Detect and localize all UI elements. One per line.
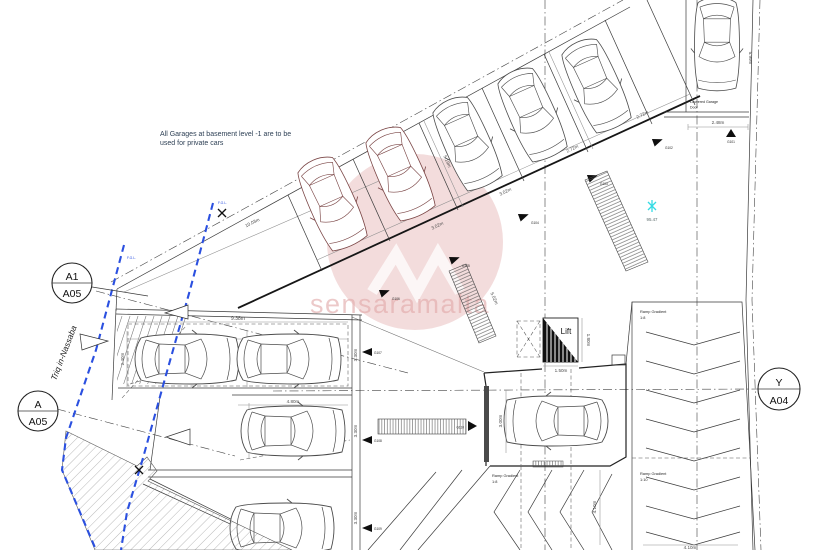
garage-door-label: G102 bbox=[665, 146, 673, 150]
dim-depth2: 3.30m bbox=[353, 424, 358, 437]
dim-lift-width: 1.50m bbox=[555, 368, 568, 373]
parked-car bbox=[241, 402, 345, 460]
section-marker-a: A A05 bbox=[18, 391, 58, 431]
ramp-centre-label: Ramp Gradient bbox=[492, 473, 519, 478]
street-name: Triq in-Nassaba bbox=[49, 324, 79, 382]
dim-stall-w1: 2.72m bbox=[636, 110, 650, 120]
parked-car bbox=[489, 61, 575, 168]
ramp-centre-ratio: 1:8 bbox=[492, 479, 497, 484]
dim-depth1: 3.30m bbox=[353, 348, 358, 361]
garage-door-label: G109 bbox=[374, 527, 382, 531]
garage-door-strip bbox=[378, 419, 466, 434]
section-marker-y: Y A04 bbox=[758, 368, 800, 410]
dim-corner-depth: 5.99m bbox=[748, 52, 753, 65]
louvered-door-line1: Louvered Garage bbox=[690, 100, 718, 104]
dim-ramp-bottom: 4.10m bbox=[684, 545, 697, 550]
dim-lift-depth: 1.80m bbox=[586, 334, 591, 347]
dim-block-total: 9.38m bbox=[231, 316, 245, 322]
parked-car bbox=[135, 330, 239, 388]
entry-side-wall bbox=[484, 386, 489, 462]
garage-door-label: G104 bbox=[531, 221, 539, 225]
fgl-label-b: F.G.L. bbox=[218, 201, 227, 205]
ramp-upper-label: Ramp Gradient bbox=[640, 309, 667, 314]
lift-shaft: Lift 1.50m 1.80m bbox=[517, 318, 591, 373]
marker-a-bottom: A05 bbox=[29, 416, 48, 428]
parked-car bbox=[504, 392, 608, 450]
ramp-upper-ratio: 1:8 bbox=[640, 315, 645, 320]
marker-a-top: A bbox=[34, 399, 41, 411]
marker-a1-bottom: A05 bbox=[63, 288, 82, 300]
marker-y-top: Y bbox=[775, 377, 782, 389]
garage-door-label: G101 bbox=[727, 140, 735, 144]
dim-ramp-side: 4.10m bbox=[592, 500, 597, 513]
dim-entry-bay: 3.00m bbox=[498, 414, 503, 427]
note-line-1: All Garages at basement level -1 are to … bbox=[160, 131, 291, 138]
fgl-label-a: F.G.L. bbox=[127, 256, 136, 260]
garage-door-label: G107 bbox=[374, 351, 382, 355]
right-ramp: Ramp Gradient 1:8 Ramp Gradient 1:10 4.1… bbox=[632, 302, 755, 550]
garage-door-label: G108 bbox=[374, 439, 382, 443]
garage-door-label: G110 bbox=[456, 426, 464, 430]
garage-door-label: G106 bbox=[392, 297, 400, 301]
dim-bay2: 4.80m bbox=[287, 399, 300, 404]
spot-level-marker: 95.47 bbox=[647, 200, 659, 222]
corner-garage-bay: 5.99m Louvered Garage Door 2.48m G101 bbox=[664, 0, 753, 144]
dim-car1a: 2.40m bbox=[120, 352, 125, 365]
marker-y-bottom: A04 bbox=[770, 395, 789, 407]
louvered-door-line2: Door bbox=[690, 106, 699, 110]
lift-label: Lift bbox=[561, 327, 572, 336]
parked-car bbox=[237, 330, 341, 388]
dim-street-frontage: 10.03m bbox=[244, 217, 260, 228]
marker-a1-top: A1 bbox=[66, 271, 79, 283]
dim-door-strip: 5.02m bbox=[489, 292, 499, 306]
dim-corner-width: 2.48m bbox=[712, 120, 725, 125]
plan-drawing: sensaramalta All Garages at basement lev… bbox=[0, 0, 815, 550]
parked-car bbox=[691, 0, 743, 91]
ramp-lower-ratio: 1:10 bbox=[640, 477, 648, 482]
section-marker-a1: A1 A05 bbox=[52, 263, 148, 303]
centre-ramp: Ramp Gradient 1:8 4.10m bbox=[368, 466, 612, 550]
spot-level-value: 95.47 bbox=[647, 217, 659, 222]
ramp-lower-label: Ramp Gradient bbox=[640, 471, 667, 476]
note-line-2: used for private cars bbox=[160, 140, 224, 147]
survey-mark bbox=[218, 209, 226, 217]
dim-depth3: 3.30m bbox=[353, 511, 358, 524]
basement-floor-plan: sensaramalta All Garages at basement lev… bbox=[0, 0, 815, 550]
general-note: All Garages at basement level -1 are to … bbox=[160, 131, 291, 147]
